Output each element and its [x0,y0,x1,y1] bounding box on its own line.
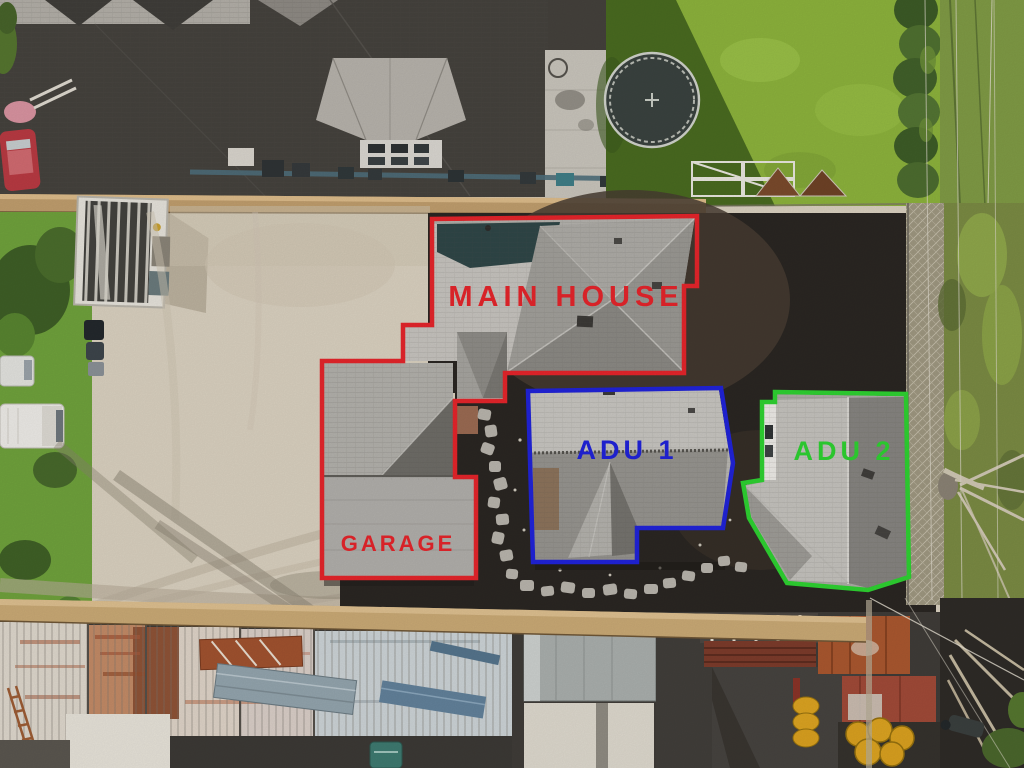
beam-stack [704,641,816,667]
white-van [0,356,34,386]
garage-label: GARAGE [341,531,456,556]
white-slabs [66,714,170,768]
neighbor-grass-topright [940,0,1024,206]
pink-tarp [4,101,36,123]
chain-link-fence [906,203,946,605]
aerial-property-photo: MAIN HOUSE GARAGE ADU 1 ADU 2 [0,0,1024,768]
main-house-label: MAIN HOUSE [448,281,683,313]
pickup-truck [0,404,64,448]
adu2-label: ADU 2 [793,436,894,466]
asphalt [170,736,512,768]
pale-pole [866,600,872,768]
brown-deck [456,406,478,434]
teal-car [370,742,402,768]
adu1-label: ADU 1 [576,435,677,465]
aerial-photo-canvas: MAIN HOUSE GARAGE ADU 1 ADU 2 [0,0,1024,768]
red-car [0,128,41,191]
gray-container [524,629,656,768]
trampoline [604,52,700,148]
dark-corner [0,740,70,768]
industrial-strip [0,598,1024,768]
back-lawn [596,0,1024,206]
asphalt-gap [656,622,712,768]
